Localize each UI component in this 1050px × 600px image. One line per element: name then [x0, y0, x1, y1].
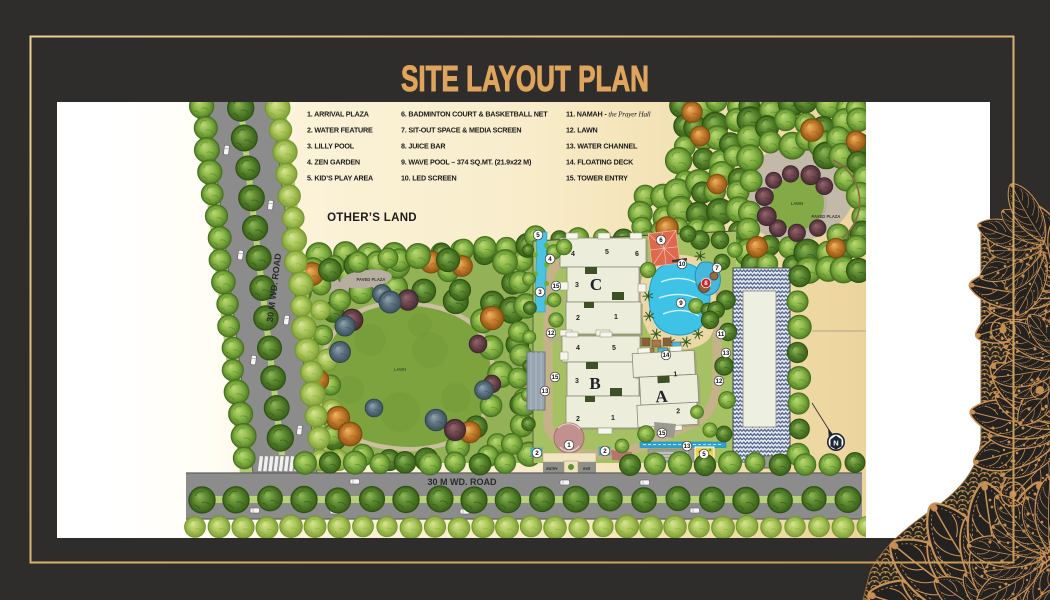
svg-text:2: 2 [576, 416, 580, 423]
svg-text:2. WATER FEATURE: 2. WATER FEATURE [307, 126, 373, 135]
svg-text:5. KID’S PLAY AREA: 5. KID’S PLAY AREA [307, 174, 373, 183]
svg-text:1: 1 [673, 371, 677, 378]
svg-text:3: 3 [575, 378, 579, 385]
svg-text:9. WAVE POOL – 374 SQ.MT. (21.: 9. WAVE POOL – 374 SQ.MT. (21.9x22 M) [401, 158, 532, 167]
svg-text:4: 4 [548, 256, 552, 263]
svg-text:C: C [590, 275, 602, 294]
svg-text:6. BADMINTON COURT & BASKETBAL: 6. BADMINTON COURT & BASKETBALL NET [401, 110, 548, 119]
svg-text:13: 13 [684, 443, 691, 450]
svg-text:1. ARRIVAL PLAZA: 1. ARRIVAL PLAZA [307, 110, 369, 119]
svg-text:ENTRY: ENTRY [546, 467, 558, 471]
svg-text:2: 2 [603, 448, 607, 455]
svg-text:8. JUICE BAR: 8. JUICE BAR [401, 142, 446, 151]
svg-text:12. LAWN: 12. LAWN [566, 126, 598, 135]
svg-text:8: 8 [704, 280, 708, 287]
svg-text:15: 15 [552, 374, 559, 381]
svg-text:5: 5 [605, 249, 609, 256]
svg-text:2: 2 [676, 408, 680, 415]
svg-text:14. FLOATING DECK: 14. FLOATING DECK [566, 158, 634, 167]
svg-text:13: 13 [542, 388, 549, 395]
svg-text:5: 5 [612, 345, 616, 352]
svg-text:9: 9 [679, 300, 683, 307]
svg-text:N: N [833, 439, 838, 448]
svg-text:OTHER’S LAND: OTHER’S LAND [327, 212, 417, 224]
svg-text:1: 1 [611, 415, 615, 422]
svg-text:15: 15 [553, 283, 560, 290]
svg-text:11: 11 [718, 331, 725, 338]
svg-text:14: 14 [663, 352, 670, 359]
svg-text:6: 6 [659, 237, 663, 244]
svg-text:3. LILLY POOL: 3. LILLY POOL [307, 142, 355, 151]
svg-text:10. LED SCREEN: 10. LED SCREEN [401, 174, 457, 183]
svg-text:15. TOWER ENTRY: 15. TOWER ENTRY [566, 174, 628, 183]
svg-text:5: 5 [536, 232, 540, 239]
svg-text:LAWN: LAWN [791, 201, 803, 206]
svg-text:10: 10 [679, 261, 686, 268]
svg-text:PAVED PLAZA: PAVED PLAZA [812, 214, 841, 219]
svg-text:3: 3 [575, 282, 579, 289]
svg-text:PAVED PLAZA: PAVED PLAZA [357, 277, 386, 282]
svg-text:B: B [589, 374, 600, 393]
svg-text:13. WATER CHANNEL: 13. WATER CHANNEL [566, 142, 638, 151]
svg-text:4: 4 [576, 345, 580, 352]
svg-text:7: 7 [715, 265, 719, 272]
svg-text:7. SIT-OUT SPACE & MEDIA SCREE: 7. SIT-OUT SPACE & MEDIA SCREEN [401, 126, 521, 135]
svg-text:SITE LAYOUT PLAN: SITE LAYOUT PLAN [401, 58, 649, 99]
svg-text:5: 5 [702, 451, 706, 458]
svg-text:LAWN: LAWN [394, 367, 406, 372]
svg-text:4. ZEN GARDEN: 4. ZEN GARDEN [307, 158, 360, 167]
svg-text:1: 1 [614, 314, 618, 321]
svg-text:A: A [655, 387, 669, 407]
svg-text:13: 13 [723, 350, 730, 357]
svg-text:15: 15 [659, 430, 666, 437]
svg-text:11. NAMAH - the Prayer Hall: 11. NAMAH - the Prayer Hall [566, 110, 651, 119]
svg-text:12: 12 [716, 378, 723, 385]
svg-text:2: 2 [535, 450, 539, 457]
svg-text:2: 2 [576, 315, 580, 322]
svg-text:6: 6 [635, 251, 639, 258]
svg-text:12: 12 [548, 330, 555, 337]
svg-text:EXIT: EXIT [583, 467, 591, 471]
svg-text:4: 4 [571, 251, 575, 258]
svg-text:3: 3 [538, 289, 542, 296]
svg-text:1: 1 [567, 442, 571, 449]
